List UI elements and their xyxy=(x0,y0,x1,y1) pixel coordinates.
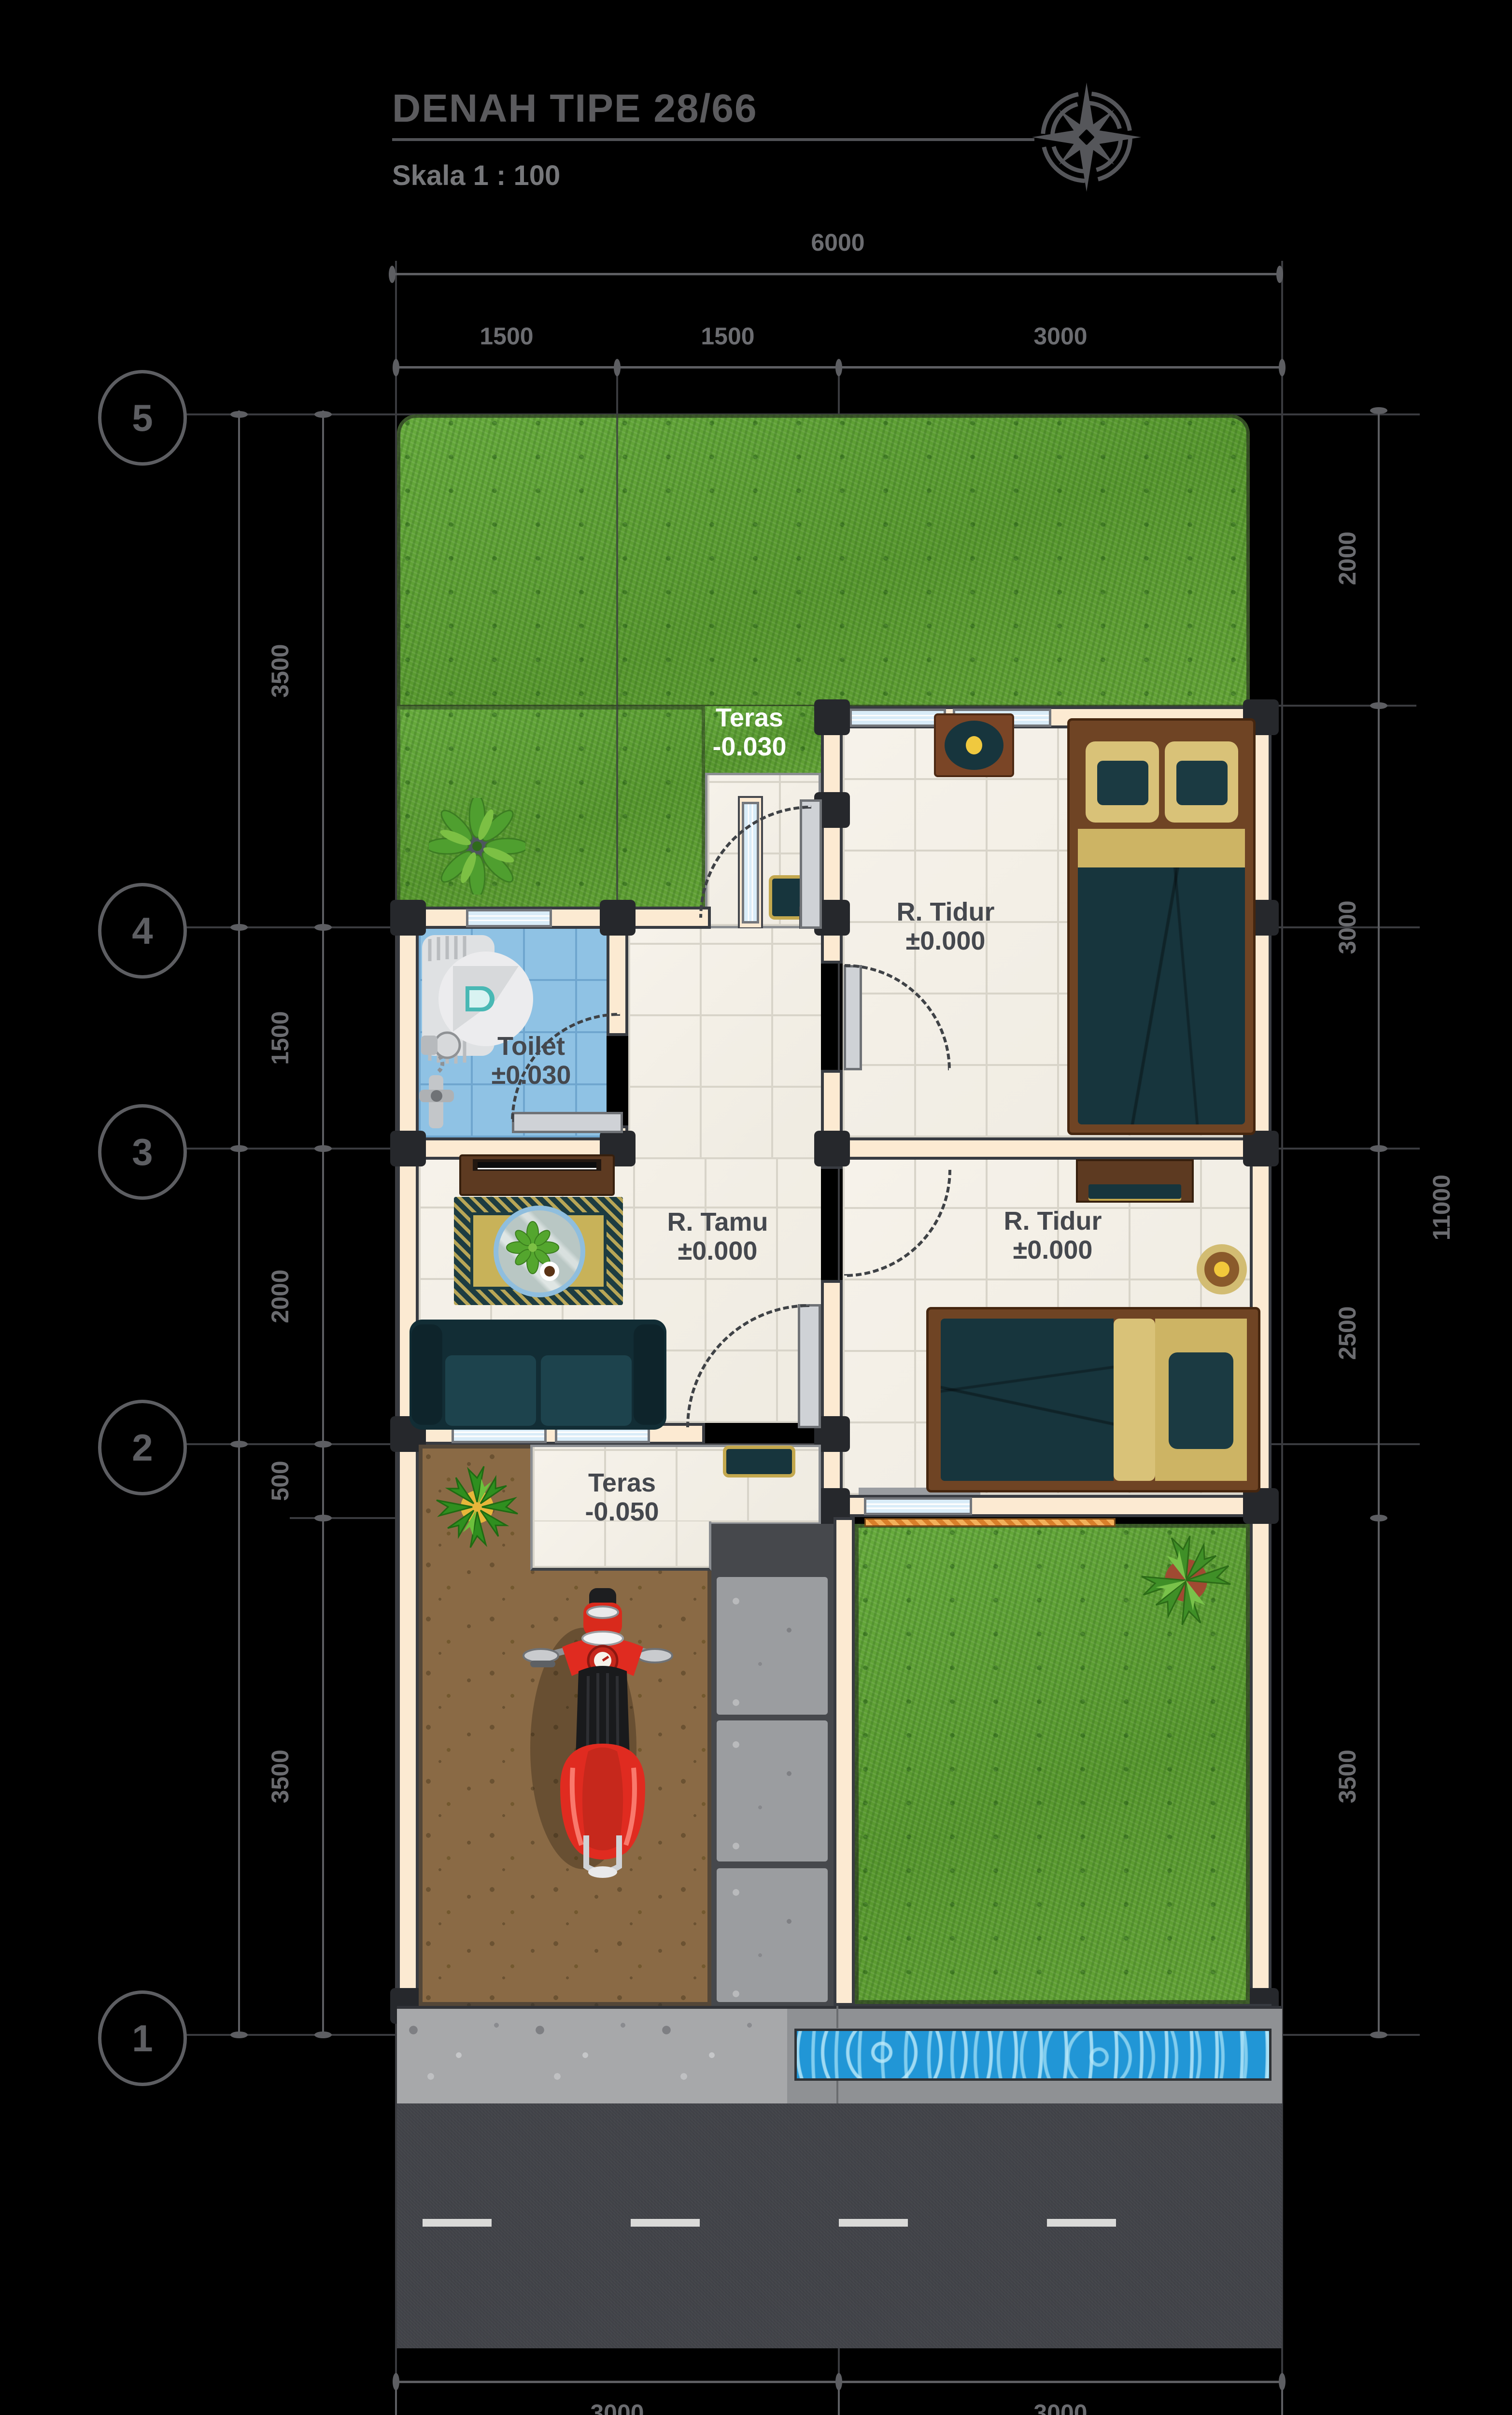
dim-tick xyxy=(1370,407,1387,414)
motorcycle-icon xyxy=(516,1584,680,1893)
room-elevation: ±0.000 xyxy=(631,1236,805,1265)
grid-bubble-1: 1 xyxy=(98,1990,187,2086)
dim-tick xyxy=(230,1441,248,1448)
coffee-cup-fill xyxy=(544,1266,555,1277)
room-label-teras-upper: Teras -0.030 xyxy=(663,703,836,761)
dim-label-left-1: 3500 xyxy=(267,618,294,724)
sofa-arm-right xyxy=(634,1324,664,1425)
garden-threshold-strip xyxy=(864,1518,1116,1527)
wall-garden-west xyxy=(834,1517,855,2006)
dim-label-left-5: 3500 xyxy=(267,1723,294,1830)
dim-line-right xyxy=(1378,411,1380,2036)
grid-bubble-2: 2 xyxy=(98,1400,187,1495)
dim-tick xyxy=(389,266,396,283)
column xyxy=(390,900,426,936)
dim-label-left-2: 1500 xyxy=(267,985,294,1091)
dim-tick xyxy=(1370,1515,1387,1521)
room-name: R. Tamu xyxy=(631,1207,805,1236)
room-elevation: -0.050 xyxy=(535,1497,709,1526)
room-name: R. Tidur xyxy=(859,897,1032,926)
dim-label-right-2: 3000 xyxy=(1334,874,1361,980)
dim-line-left-inner xyxy=(322,411,324,2036)
room-elevation: ±0.000 xyxy=(859,926,1032,955)
floor-plan-scene: DENAH TIPE 28/66 Skala 1 : 100 xyxy=(0,0,1512,2415)
dim-label-bottom-2: 3000 xyxy=(1007,2400,1114,2415)
dim-line-top-total xyxy=(392,273,1283,275)
room-label-toilet: Toilet ±0.030 xyxy=(444,1032,618,1090)
page-title: DENAH TIPE 28/66 xyxy=(392,86,758,131)
bed-upper-band xyxy=(1078,829,1245,867)
dim-tick xyxy=(393,2373,399,2390)
fan-hub xyxy=(1214,1262,1229,1277)
deck-joint-line xyxy=(836,2081,838,2103)
road-lane-dash xyxy=(1047,2219,1116,2227)
grid-row-ext-front xyxy=(1272,705,1416,707)
dim-tick xyxy=(393,359,399,376)
window-bedroom-upper-1 xyxy=(849,709,946,727)
wardrobe-front xyxy=(1088,1184,1181,1201)
path-slab xyxy=(717,1577,828,1715)
dim-tick xyxy=(230,2031,248,2038)
room-label-teras-lower: Teras -0.050 xyxy=(535,1468,709,1526)
path-slab xyxy=(717,1868,828,2002)
dim-tick xyxy=(1370,2031,1387,2038)
carport-plant-icon xyxy=(429,1459,525,1555)
tv-screen xyxy=(478,1162,596,1168)
dim-tick xyxy=(614,359,621,376)
dim-tick xyxy=(314,1441,332,1448)
room-name: Teras xyxy=(663,703,836,732)
window-bedroom-lower xyxy=(864,1497,972,1515)
window-toilet xyxy=(466,909,552,927)
room-name: Teras xyxy=(535,1468,709,1497)
room-label-bedroom-upper: R. Tidur ±0.000 xyxy=(859,897,1032,955)
room-elevation: -0.030 xyxy=(663,732,836,761)
column xyxy=(1243,1488,1279,1524)
sidewalk-concrete xyxy=(397,2006,787,2103)
room-label-living: R. Tamu ±0.000 xyxy=(631,1207,805,1265)
column xyxy=(814,1131,850,1166)
dim-label-left-4: 500 xyxy=(267,1428,294,1534)
room-name: R. Tidur xyxy=(966,1207,1140,1236)
sofa-cushion-2 xyxy=(541,1355,632,1426)
doormat-back-overlay xyxy=(723,1446,795,1477)
dim-label-right-4: 3500 xyxy=(1334,1723,1361,1830)
grid-bubble-label: 5 xyxy=(132,396,153,440)
grid-bubble-5: 5 xyxy=(98,370,187,466)
grid-bubble-3: 3 xyxy=(98,1104,187,1200)
dim-line-left-outer xyxy=(238,411,240,2036)
wall-bedrooms-divider xyxy=(821,1137,1272,1160)
road-lane-dash xyxy=(423,2219,492,2227)
dim-label-right-total: 11000 xyxy=(1428,1154,1455,1261)
dim-tick xyxy=(314,2031,332,2038)
dim-label-top-2: 1500 xyxy=(675,323,781,350)
dim-tick xyxy=(1276,266,1283,283)
grid-bubble-label: 2 xyxy=(132,1426,153,1470)
dim-tick xyxy=(230,1145,248,1152)
teras-lower-floor-bottom xyxy=(530,1521,711,1571)
bed-lower-band xyxy=(1114,1319,1155,1481)
dim-tick xyxy=(314,1145,332,1152)
ceiling-fan-hub xyxy=(966,736,982,754)
dim-tick xyxy=(230,924,248,931)
grid-col-overlay-line xyxy=(616,414,618,927)
dim-label-right-1: 2000 xyxy=(1334,505,1361,611)
dim-tick xyxy=(1370,1145,1387,1152)
compass-rose-icon xyxy=(1030,80,1144,194)
road-lane-dash xyxy=(631,2219,700,2227)
dim-tick xyxy=(1370,702,1387,709)
dim-tick xyxy=(314,411,332,418)
dim-label-top-1: 1500 xyxy=(453,323,560,350)
garden-potted-plant-icon xyxy=(1138,1532,1234,1629)
dim-tick xyxy=(314,1515,332,1521)
scale-label: Skala 1 : 100 xyxy=(392,159,560,192)
dim-label-left-3: 2000 xyxy=(267,1243,294,1350)
room-name: Toilet xyxy=(444,1032,618,1061)
path-slab xyxy=(717,1720,828,1861)
pool-water xyxy=(794,2029,1272,2081)
dim-tick xyxy=(314,924,332,931)
column xyxy=(600,900,636,936)
dim-label-bottom-1: 3000 xyxy=(564,2400,670,2415)
dim-tick xyxy=(1279,2373,1286,2390)
title-underline xyxy=(392,138,1034,141)
hall-floor xyxy=(628,928,821,1159)
sofa-cushion-1 xyxy=(445,1355,536,1426)
dim-label-top-3: 3000 xyxy=(1007,323,1114,350)
dim-tick xyxy=(230,411,248,418)
wall-west xyxy=(397,907,419,2006)
dim-tick xyxy=(835,2373,842,2390)
room-label-bedroom-lower: R. Tidur ±0.000 xyxy=(966,1207,1140,1264)
bed-upper-blanket xyxy=(1078,867,1245,1124)
bed-upper-pillow-accent-1 xyxy=(1097,761,1148,805)
grid-bubble-label: 1 xyxy=(132,2017,153,2060)
dim-label-top-total: 6000 xyxy=(785,229,891,256)
room-elevation: ±0.000 xyxy=(966,1236,1140,1264)
dim-label-right-3: 2500 xyxy=(1334,1280,1361,1386)
grid-bubble-label: 3 xyxy=(132,1130,153,1174)
column xyxy=(1243,1131,1279,1166)
garden-fern-icon xyxy=(429,798,525,895)
deck-joint-line xyxy=(836,2006,838,2028)
dim-tick xyxy=(835,359,842,376)
road-lane-dash xyxy=(839,2219,908,2227)
wall-inner-lower xyxy=(821,1280,843,1518)
grid-bubble-label: 4 xyxy=(132,909,153,953)
bed-lower-blanket xyxy=(941,1319,1114,1481)
dim-tick xyxy=(1279,359,1286,376)
wall-toilet-north xyxy=(397,907,711,929)
grid-bubble-4: 4 xyxy=(98,883,187,979)
room-elevation: ±0.030 xyxy=(444,1061,618,1090)
bed-lower-pillow xyxy=(1169,1352,1233,1449)
bed-upper-pillow-accent-2 xyxy=(1176,761,1228,805)
sofa-arm-left xyxy=(411,1324,442,1425)
front-garden-grass xyxy=(397,414,1250,708)
